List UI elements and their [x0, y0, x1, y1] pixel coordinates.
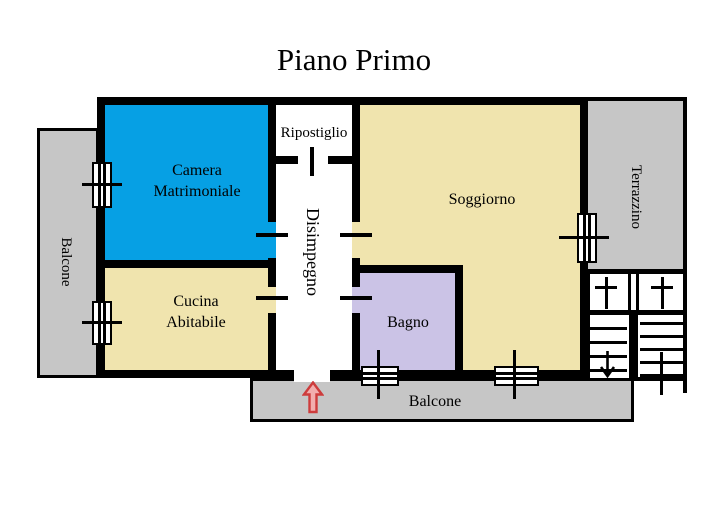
stairs-post-bottom-v [660, 352, 663, 395]
wall-terrace-right [683, 97, 687, 393]
storage-label: Ripostiglio [274, 124, 354, 142]
livingroom-label: Soggiorno [422, 190, 542, 210]
page-title: Piano Primo [24, 42, 684, 82]
wall-corridor-left-1 [268, 105, 276, 222]
stairs-tread [640, 335, 683, 338]
stairs-post-right-v [661, 277, 664, 309]
door-tick-bathroom [340, 296, 372, 300]
wall-bottom-left-segment [97, 370, 294, 378]
wall-corridor-left-3 [268, 313, 276, 370]
wall-bathroom-top [358, 265, 463, 273]
window-kitchen-axis [82, 321, 122, 324]
stairs-tread [590, 341, 627, 344]
wall-bathroom-right [455, 265, 463, 375]
terrace-label: Terrazzino [627, 147, 645, 247]
stairs-down-arrow-icon [598, 348, 618, 382]
door-tick-storage [310, 147, 314, 176]
stairs-tread [640, 348, 683, 351]
bedroom-label: Camera Matrimoniale [137, 160, 257, 204]
floor-plan: Piano Primo [0, 0, 709, 505]
window-livingroom-right-axis [559, 236, 609, 239]
stairs-post-left-h [595, 286, 617, 289]
hallway-label: Disimpegno [303, 187, 323, 317]
stairs-landing-divider-2 [636, 274, 639, 312]
balcony-bottom-label: Balcone [375, 392, 495, 412]
door-tick-livingroom [340, 233, 372, 237]
stairs-post-left-v [605, 277, 608, 309]
stairs-post-bottom-h [651, 377, 672, 380]
window-bathroom [361, 366, 399, 386]
window-livingroom-bottom-axis [513, 350, 516, 399]
stairs-tread [590, 327, 627, 330]
door-tick-bedroom [256, 233, 288, 237]
wall-storage-bottom-a [276, 156, 298, 164]
stairs-landing-divider-1 [628, 274, 631, 312]
kitchen-label: Cucina Abitabile [156, 291, 236, 335]
wall-terrace-top [588, 97, 687, 101]
wall-corridor-left-2 [268, 258, 276, 287]
stairs-center-divider [629, 315, 638, 381]
door-tick-kitchen [256, 296, 288, 300]
window-livingroom-bottom [494, 366, 539, 386]
wall-storage-bottom-b [328, 156, 354, 164]
bathroom-label: Bagno [368, 313, 448, 333]
window-bedroom-axis [82, 183, 122, 186]
wall-corridor-right-3 [352, 313, 360, 370]
stairs-post-right-h [651, 286, 673, 289]
stairs-tread [640, 322, 683, 325]
entrance-arrow-icon [302, 381, 324, 414]
wall-top [97, 97, 588, 105]
wall-bedroom-kitchen [105, 260, 268, 268]
balcony-left-label: Balcone [57, 222, 75, 302]
